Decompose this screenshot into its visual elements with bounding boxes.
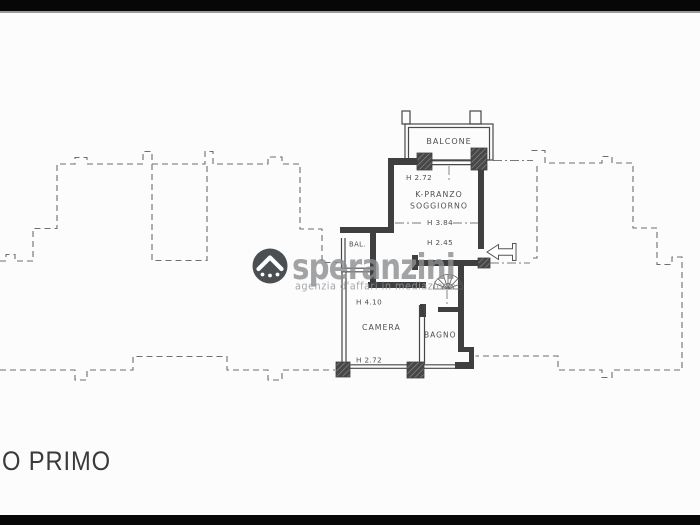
floor-plan-drawing: BALCONE H 2.72 K-PRANZO SOGGIORNO H 3.84… xyxy=(0,0,700,525)
label-balcone: BALCONE xyxy=(426,137,471,146)
entrance-arrow-icon xyxy=(487,244,516,261)
label-bagno: BAGNO xyxy=(424,331,456,340)
label-h245: H 2.45 xyxy=(427,238,453,247)
agency-watermark: speranzini agenzia d'affari in mediazion… xyxy=(253,247,457,293)
label-camera: CAMERA xyxy=(362,323,401,332)
floor-title: O PRIMO xyxy=(2,446,111,476)
label-soggiorno: SOGGIORNO xyxy=(410,202,468,211)
screenshot-root: BALCONE H 2.72 K-PRANZO SOGGIORNO H 3.84… xyxy=(0,0,700,525)
label-h272-top: H 2.72 xyxy=(406,173,432,182)
label-h384: H 3.84 xyxy=(427,218,453,227)
agency-logo-icon xyxy=(253,249,288,284)
label-kpranzo: K-PRANZO xyxy=(415,190,463,199)
label-h410: H 4.10 xyxy=(356,298,382,307)
label-h272-bottom: H 2.72 xyxy=(356,356,382,365)
watermark-tagline: agenzia d'affari in mediazione xyxy=(295,281,456,293)
bottom-letterbox-bar xyxy=(0,515,700,525)
